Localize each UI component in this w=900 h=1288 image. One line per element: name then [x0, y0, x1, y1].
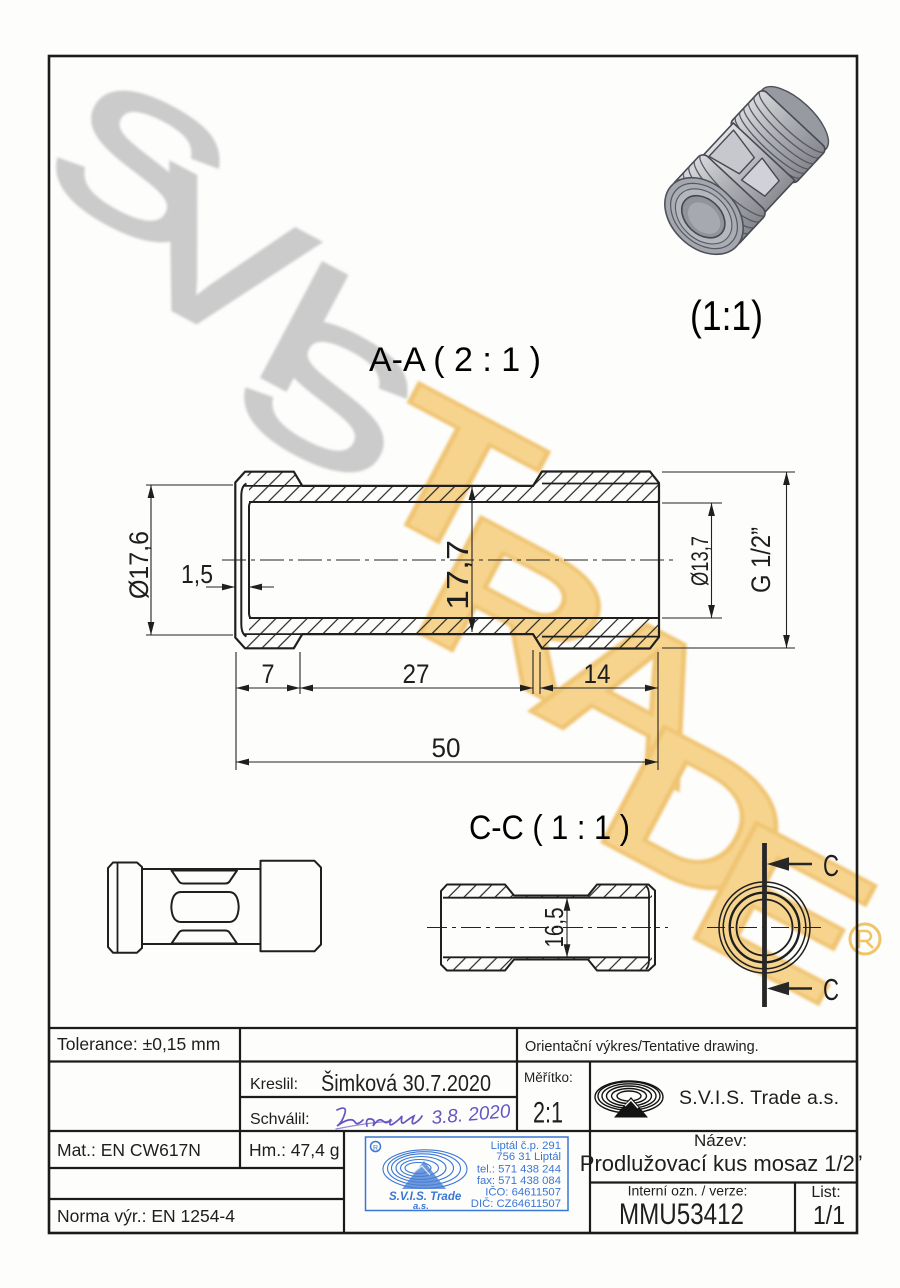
svg-text:List:: List: [811, 1184, 840, 1201]
svg-text:MMU53412: MMU53412 [619, 1198, 744, 1231]
svg-text:Schválil:: Schválil: [250, 1111, 310, 1128]
svg-text:C: C [823, 972, 839, 1007]
svg-text:756 31 Liptál: 756 31 Liptál [496, 1151, 561, 1163]
svg-text:Kreslil:: Kreslil: [250, 1076, 298, 1093]
svg-text:R: R [373, 1145, 378, 1152]
svg-text:Tolerance: ±0,15 mm: Tolerance: ±0,15 mm [57, 1034, 220, 1054]
svg-text:Šimková 30.7.2020: Šimková 30.7.2020 [321, 1069, 491, 1096]
svg-text:Ø13,7: Ø13,7 [687, 536, 714, 586]
svg-text:a.s.: a.s. [413, 1201, 429, 1212]
svg-text:27: 27 [403, 659, 430, 689]
svg-text:2:1: 2:1 [533, 1097, 563, 1130]
svg-text:17,7: 17,7 [440, 540, 475, 610]
svg-text:fax: 571 438 084: fax: 571 438 084 [477, 1175, 561, 1187]
svg-text:50: 50 [432, 733, 461, 763]
svg-text:Norma výr.: EN 1254-4: Norma výr.: EN 1254-4 [57, 1206, 235, 1226]
svg-text:C: C [823, 848, 839, 883]
svg-text:Orientační výkres/Tentative dr: Orientační výkres/Tentative drawing. [525, 1039, 759, 1055]
svg-text:Mat.: EN CW617N: Mat.: EN CW617N [57, 1140, 201, 1160]
svg-text:Název:: Název: [694, 1131, 747, 1150]
svg-text:14: 14 [584, 659, 611, 689]
svg-text:C-C ( 1 : 1 ): C-C ( 1 : 1 ) [469, 809, 630, 847]
svg-text:1/1: 1/1 [813, 1200, 845, 1230]
svg-text:IČO: 64611507: IČO: 64611507 [485, 1186, 561, 1199]
svg-text:tel.: 571 438 244: tel.: 571 438 244 [477, 1164, 561, 1176]
svg-text:S.V.I.S. Trade a.s.: S.V.I.S. Trade a.s. [679, 1087, 839, 1109]
svg-text:Hm.: 47,4 g: Hm.: 47,4 g [249, 1140, 339, 1160]
svg-text:1,5: 1,5 [181, 559, 213, 589]
svg-text:Prodlužovací kus mosaz 1/2”: Prodlužovací kus mosaz 1/2” [580, 1151, 862, 1176]
svg-text:Ø17,6: Ø17,6 [124, 531, 154, 599]
svg-text:G 1/2”: G 1/2” [746, 527, 776, 593]
svg-text:Interní ozn. / verze:: Interní ozn. / verze: [628, 1183, 748, 1199]
svg-text:16,5: 16,5 [539, 908, 569, 948]
svg-text:(1:1): (1:1) [690, 292, 763, 339]
svg-text:DIČ: CZ64611507: DIČ: CZ64611507 [471, 1197, 561, 1210]
svg-text:7: 7 [262, 659, 275, 689]
svg-text:A-A ( 2 : 1 ): A-A ( 2 : 1 ) [369, 341, 541, 379]
svg-text:Měřítko:: Měřítko: [524, 1070, 573, 1085]
